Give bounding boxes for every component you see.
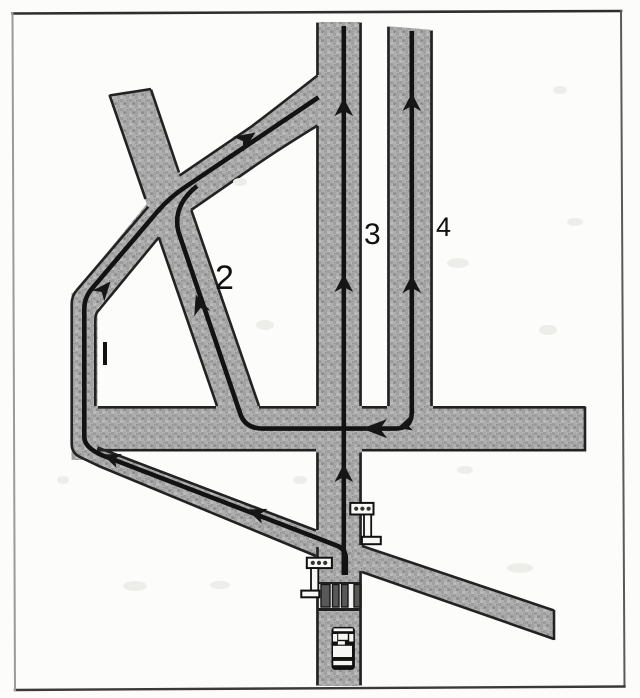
svg-text:2: 2 [215, 259, 234, 297]
svg-text:3: 3 [364, 218, 381, 251]
svg-text:4: 4 [436, 212, 451, 242]
